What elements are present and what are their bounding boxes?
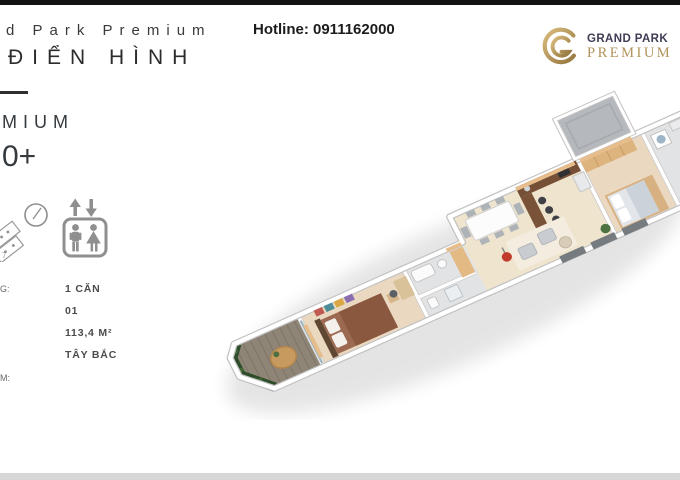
project-title-cut: d Park Premium [6, 22, 212, 39]
spec-label-fragment-bottom: M: [0, 373, 10, 383]
spec-label-fragment-top: G: [0, 284, 10, 294]
hotline-text: Hotline: 0911162000 [253, 21, 395, 38]
spec-value-units: 1 CĂN [65, 283, 101, 295]
cut-number: 0+ [2, 140, 36, 174]
unit-marker-number: 7 [2, 251, 7, 260]
grand-park-monogram-icon [540, 26, 582, 68]
logo-name-top: GRAND PARK [587, 33, 668, 45]
grand-park-premium-logo: GRAND PARK PREMIUM [540, 26, 680, 78]
logo-name-bottom: PREMIUM [587, 45, 672, 62]
elevator-icon [60, 197, 110, 259]
subtitle-underline [0, 91, 28, 94]
bottom-gray-bar [0, 473, 680, 480]
floorplan-subtitle-cut: ĐIỂN HÌNH [8, 46, 196, 70]
unit-position-diagram-icon: 7 [0, 196, 52, 262]
spec-value-direction: TÂY BẮC [65, 349, 117, 361]
spec-value-area: 113,4 M² [65, 327, 112, 339]
floorplan-3d-render [205, 90, 680, 420]
cut-word-premium: MIUM [2, 112, 74, 133]
spec-value-number: 01 [65, 305, 78, 317]
listing-poster: d Park Premium ĐIỂN HÌNH Hotline: 091116… [0, 0, 680, 480]
top-black-bar [0, 0, 680, 5]
